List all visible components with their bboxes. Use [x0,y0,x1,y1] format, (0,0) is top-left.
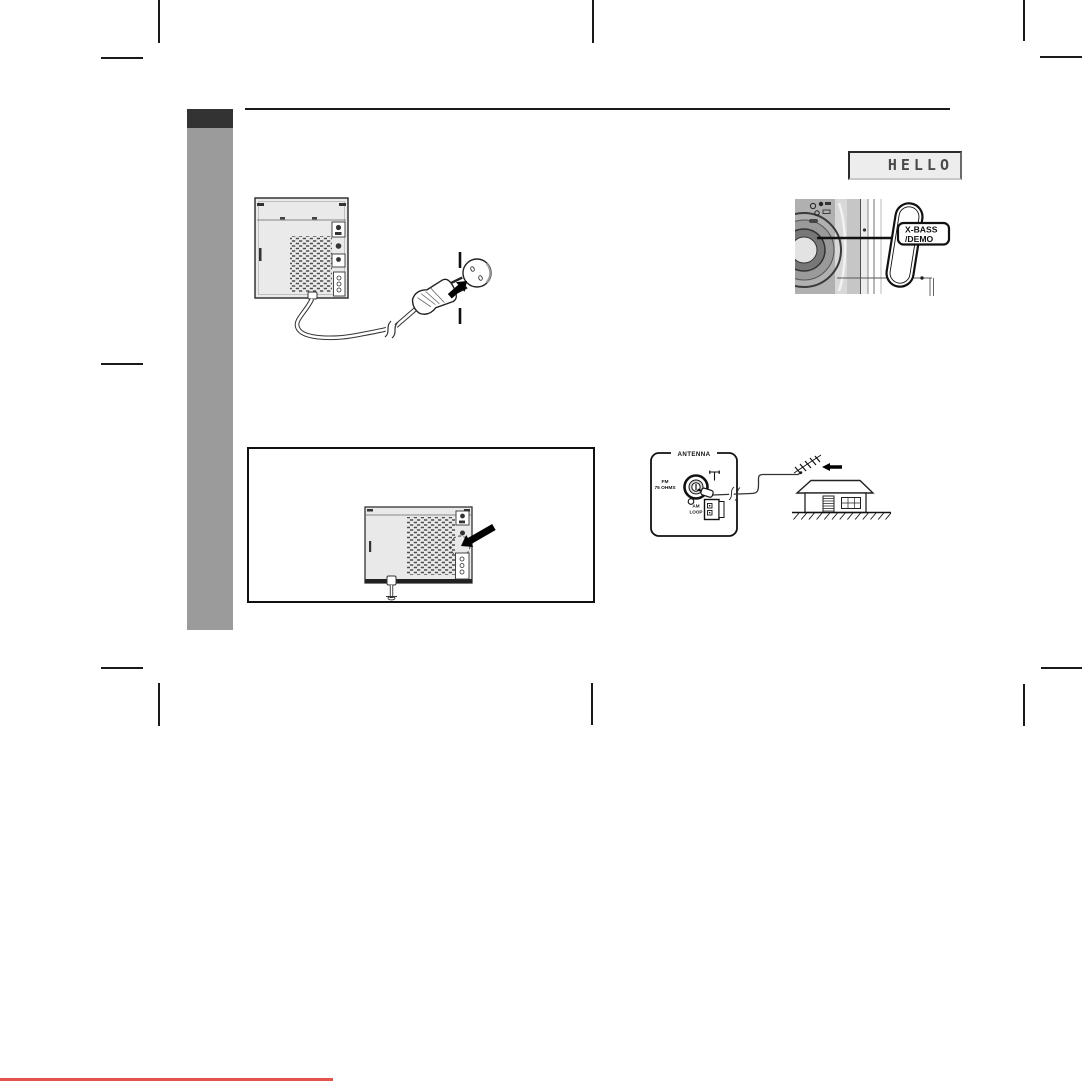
button-label-line2: /DEMO [905,234,933,244]
crop-mark [101,57,143,59]
power-cord [297,299,418,338]
crop-mark [1041,667,1082,669]
fm-wire-antenna [386,576,397,600]
am-label-line1: AM [692,504,699,509]
xbass-demo-button: X-BASS /DEMO [885,201,949,288]
crop-mark [1023,0,1025,41]
crop-mark [158,0,160,43]
wall-socket [463,259,491,287]
house-window [842,498,861,509]
antenna-terminal-panel: ANTENNA FM 75 OHMS AM LOOP [651,448,737,536]
antenna-arrow [822,463,842,471]
crop-mark [101,667,143,669]
crop-mark [591,683,593,725]
rear-panel-illustration [255,198,348,299]
xbass-demo-callout: X-BASS /DEMO [795,197,970,297]
cord-break-symbol [385,321,398,338]
fm-label-line1: FM [662,479,669,485]
section-tab [187,109,233,630]
vent-grille [407,517,455,575]
ground-line [792,513,891,520]
vent-grille [290,236,332,292]
antenna-title: ANTENNA [677,451,710,458]
power-connection-diagram [250,190,540,345]
lcd-display: HELLO [848,151,962,180]
fm-label-line2: 75 OHMS [654,485,676,491]
antenna-hookup-diagram: ANTENNA FM 75 OHMS AM LOOP [645,443,940,548]
crop-mark [158,683,160,726]
note-box [247,447,595,603]
crop-mark [592,0,594,43]
am-loop-terminal [705,500,725,520]
crop-mark [1040,56,1082,58]
rear-panel-mini [365,507,472,583]
fm-antenna-diagram [249,449,593,601]
accent-line [0,1078,333,1081]
outdoor-antenna [794,455,821,474]
house-door [823,496,834,513]
section-rule [245,108,950,110]
crop-mark [1023,684,1025,726]
am-label-line2: LOOP [689,510,702,515]
crop-mark [101,363,143,365]
lcd-text: HELLO [850,153,960,178]
section-tab-header [187,109,233,128]
manual-page: HELLO [0,0,1082,1084]
house-illustration [797,481,873,513]
